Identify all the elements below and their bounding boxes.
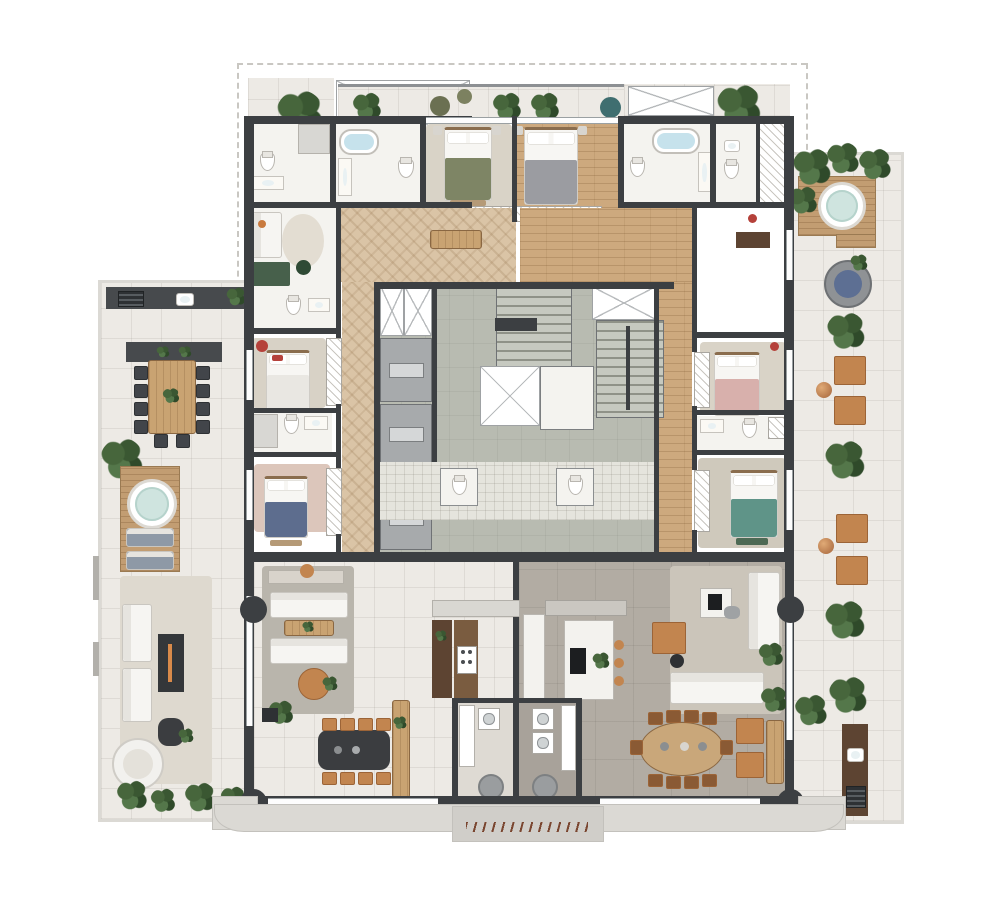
- wall: [654, 282, 659, 560]
- bar-stool: [614, 676, 624, 686]
- wall: [692, 332, 794, 338]
- wall: [576, 698, 582, 798]
- hall-left-unit: [340, 208, 516, 282]
- vent-shaft: [404, 286, 432, 336]
- bed-5: [714, 352, 760, 416]
- wall: [710, 116, 716, 208]
- kitchen-counter: [432, 600, 520, 617]
- table-setting: [698, 742, 707, 751]
- laundry-counter: [459, 705, 475, 767]
- property-line-top: [237, 63, 807, 65]
- dining-chair: [176, 434, 190, 448]
- decor-bowl: [748, 214, 757, 223]
- dining-chair: [322, 772, 337, 785]
- bed-bench: [736, 538, 768, 545]
- stone-decor: [724, 606, 740, 619]
- table-setting: [352, 746, 360, 754]
- accent-pillow: [272, 355, 283, 361]
- herb-planter: [178, 346, 192, 358]
- fire-table: [158, 634, 184, 692]
- cooktop: [457, 646, 477, 674]
- dining-chair: [376, 718, 391, 731]
- lounge-chair: [122, 668, 152, 722]
- dining-chair: [358, 772, 373, 785]
- sun-lounger: [126, 528, 174, 547]
- column: [240, 596, 267, 623]
- dining-chair: [684, 710, 699, 723]
- copper-side-table: [816, 382, 832, 398]
- column: [777, 596, 804, 623]
- louver-ticks: [466, 822, 588, 832]
- sofa: [748, 572, 780, 650]
- bed-4: [264, 476, 308, 538]
- shower: [298, 124, 330, 154]
- dining-chair: [196, 384, 210, 398]
- vanity-sink: [304, 416, 328, 430]
- dining-chair: [322, 718, 337, 731]
- dining-chair: [358, 718, 373, 731]
- plant-icon: [760, 686, 788, 714]
- wall: [618, 116, 624, 208]
- dining-chair: [648, 712, 663, 725]
- terrace-armchair: [834, 396, 866, 425]
- balcony-rail: [338, 84, 624, 87]
- wall: [336, 404, 341, 468]
- stair-void: [480, 366, 540, 426]
- tv-screen: [708, 594, 722, 610]
- sun-lounger: [126, 551, 174, 570]
- wall: [420, 116, 426, 208]
- dining-chair: [154, 434, 168, 448]
- dining-chair: [666, 710, 681, 723]
- vanity-sink: [252, 176, 284, 190]
- pantry-decor: [435, 630, 447, 642]
- elevator: [380, 404, 432, 464]
- bathtub: [339, 129, 379, 155]
- sofa: [270, 638, 348, 664]
- burner: [461, 660, 465, 664]
- armchair: [736, 752, 764, 778]
- dining-chair: [134, 420, 148, 434]
- deck-steps: [836, 234, 876, 248]
- pouf: [430, 96, 450, 116]
- washer: [532, 708, 554, 730]
- pouf: [300, 564, 314, 578]
- wall: [330, 116, 336, 206]
- plant-icon: [824, 440, 866, 482]
- plant-icon: [794, 694, 828, 728]
- media-cabinet: [262, 708, 278, 722]
- hot-tub: [818, 182, 866, 230]
- nightstand: [433, 126, 442, 135]
- sideboard: [392, 700, 410, 798]
- wall: [244, 202, 472, 208]
- wall: [692, 406, 697, 470]
- table-centerpiece: [162, 388, 180, 404]
- hall-sideboard: [736, 232, 770, 248]
- vanity-sink: [338, 158, 352, 196]
- plant-icon: [826, 312, 866, 352]
- plant-icon: [116, 780, 148, 812]
- window: [786, 620, 793, 740]
- stair-landing: [495, 318, 537, 331]
- stair-rail: [626, 326, 630, 410]
- terrace-edge-detail: [93, 556, 99, 600]
- hall-right-unit: [520, 208, 692, 282]
- bar-stool: [614, 640, 624, 650]
- vent-shaft: [380, 286, 404, 336]
- herb-planter: [156, 346, 170, 358]
- outdoor-sink: [176, 293, 194, 306]
- dining-chair: [196, 366, 210, 380]
- marble-island: [523, 614, 545, 700]
- dining-chair: [648, 774, 663, 787]
- desk: [250, 262, 290, 286]
- wall: [374, 282, 674, 289]
- pouf: [457, 89, 472, 104]
- plant-icon: [226, 287, 246, 307]
- bed-master-1: [444, 127, 492, 201]
- nightstand: [492, 126, 501, 135]
- dining-chair: [340, 772, 355, 785]
- daybed-sofa: [252, 212, 282, 258]
- plant-icon: [150, 788, 176, 814]
- dining-chair: [702, 774, 717, 787]
- wall: [512, 116, 517, 222]
- dining-chair: [630, 740, 643, 755]
- terrace-armchair: [836, 514, 868, 543]
- armchair: [736, 718, 764, 744]
- plant-icon: [592, 652, 610, 670]
- window: [246, 470, 253, 520]
- wall: [692, 450, 794, 455]
- wall: [756, 120, 760, 204]
- wall: [432, 282, 437, 462]
- wardrobe: [694, 352, 710, 408]
- sofa: [670, 672, 764, 704]
- dining-chair: [376, 772, 391, 785]
- hall-sideboard: [430, 230, 482, 249]
- window: [786, 470, 793, 530]
- console-table: [766, 720, 784, 784]
- grill-icon: [846, 786, 866, 808]
- laundry-counter: [561, 705, 576, 771]
- plant-tray: [178, 728, 194, 744]
- shaft-open-to-below: [628, 86, 714, 116]
- window: [786, 230, 793, 280]
- plant-icon: [850, 254, 868, 272]
- service-room: [540, 366, 594, 430]
- dining-chair: [134, 402, 148, 416]
- bed-master-2: [524, 127, 578, 205]
- wall: [244, 452, 340, 457]
- dining-chair: [684, 776, 699, 789]
- dining-chair: [666, 776, 681, 789]
- pouf: [600, 97, 621, 118]
- dining-chair: [340, 718, 355, 731]
- washbasin: [724, 140, 740, 152]
- window: [786, 350, 793, 400]
- wall: [620, 116, 790, 124]
- terrace-armchair: [836, 556, 868, 585]
- window: [424, 117, 620, 124]
- floor-plan: [0, 0, 1000, 923]
- lounge-chair: [122, 604, 152, 662]
- vent-shaft: [592, 286, 656, 320]
- plant-icon: [758, 642, 784, 668]
- burner: [468, 650, 472, 654]
- wall: [374, 282, 380, 560]
- core-corridor-floor: [377, 462, 658, 520]
- cooktop-black: [570, 648, 586, 674]
- outdoor-sink: [847, 748, 864, 762]
- washer: [532, 732, 554, 754]
- plant-icon: [322, 676, 338, 692]
- table-setting: [334, 746, 342, 754]
- vanity-sink: [700, 419, 724, 433]
- bed-bench: [270, 540, 302, 546]
- plant-icon: [302, 621, 314, 633]
- hot-tub: [127, 479, 177, 529]
- bathtub: [652, 128, 700, 154]
- grill-icon: [118, 291, 144, 307]
- burner: [468, 660, 472, 664]
- dining-chair: [720, 740, 733, 755]
- vanity-sink: [308, 298, 330, 312]
- wall: [244, 552, 794, 562]
- terrace-edge-detail: [93, 642, 99, 676]
- property-line-right: [806, 63, 808, 160]
- wall: [244, 408, 340, 413]
- window: [246, 350, 253, 400]
- side-table: [670, 654, 684, 668]
- table-setting: [680, 742, 689, 751]
- plant-icon: [824, 600, 866, 642]
- terrace-armchair: [834, 356, 866, 385]
- bar-stool: [614, 658, 624, 668]
- pergola-canopy: [126, 342, 222, 362]
- corridor-left-unit: [342, 282, 376, 556]
- wall: [620, 202, 794, 208]
- kitchen-counter: [545, 600, 627, 616]
- leather-armchair: [652, 622, 686, 654]
- dining-chair: [196, 402, 210, 416]
- elevator: [380, 338, 432, 402]
- table-setting: [660, 742, 669, 751]
- plant-icon: [393, 716, 407, 730]
- copper-side-table: [818, 538, 834, 554]
- plant-icon: [858, 148, 892, 182]
- plant-icon: [826, 142, 860, 176]
- dining-chair: [134, 366, 148, 380]
- decor-red: [256, 340, 268, 352]
- pouf: [296, 260, 311, 275]
- dining-chair: [196, 420, 210, 434]
- cushion: [258, 220, 266, 228]
- wardrobe: [326, 468, 342, 536]
- shower: [252, 414, 278, 448]
- decor-red: [770, 342, 779, 351]
- wall: [244, 328, 340, 334]
- bed-6: [730, 470, 778, 538]
- burner: [461, 650, 465, 654]
- wardrobe: [326, 338, 342, 406]
- nightstand: [578, 126, 587, 135]
- sofa: [270, 592, 348, 618]
- plant-icon: [828, 676, 868, 716]
- dining-chair: [702, 712, 717, 725]
- wall: [336, 208, 341, 338]
- wall: [692, 208, 697, 352]
- wall: [692, 410, 794, 415]
- wardrobe: [694, 470, 710, 532]
- dining-chair: [134, 384, 148, 398]
- washer: [478, 708, 500, 730]
